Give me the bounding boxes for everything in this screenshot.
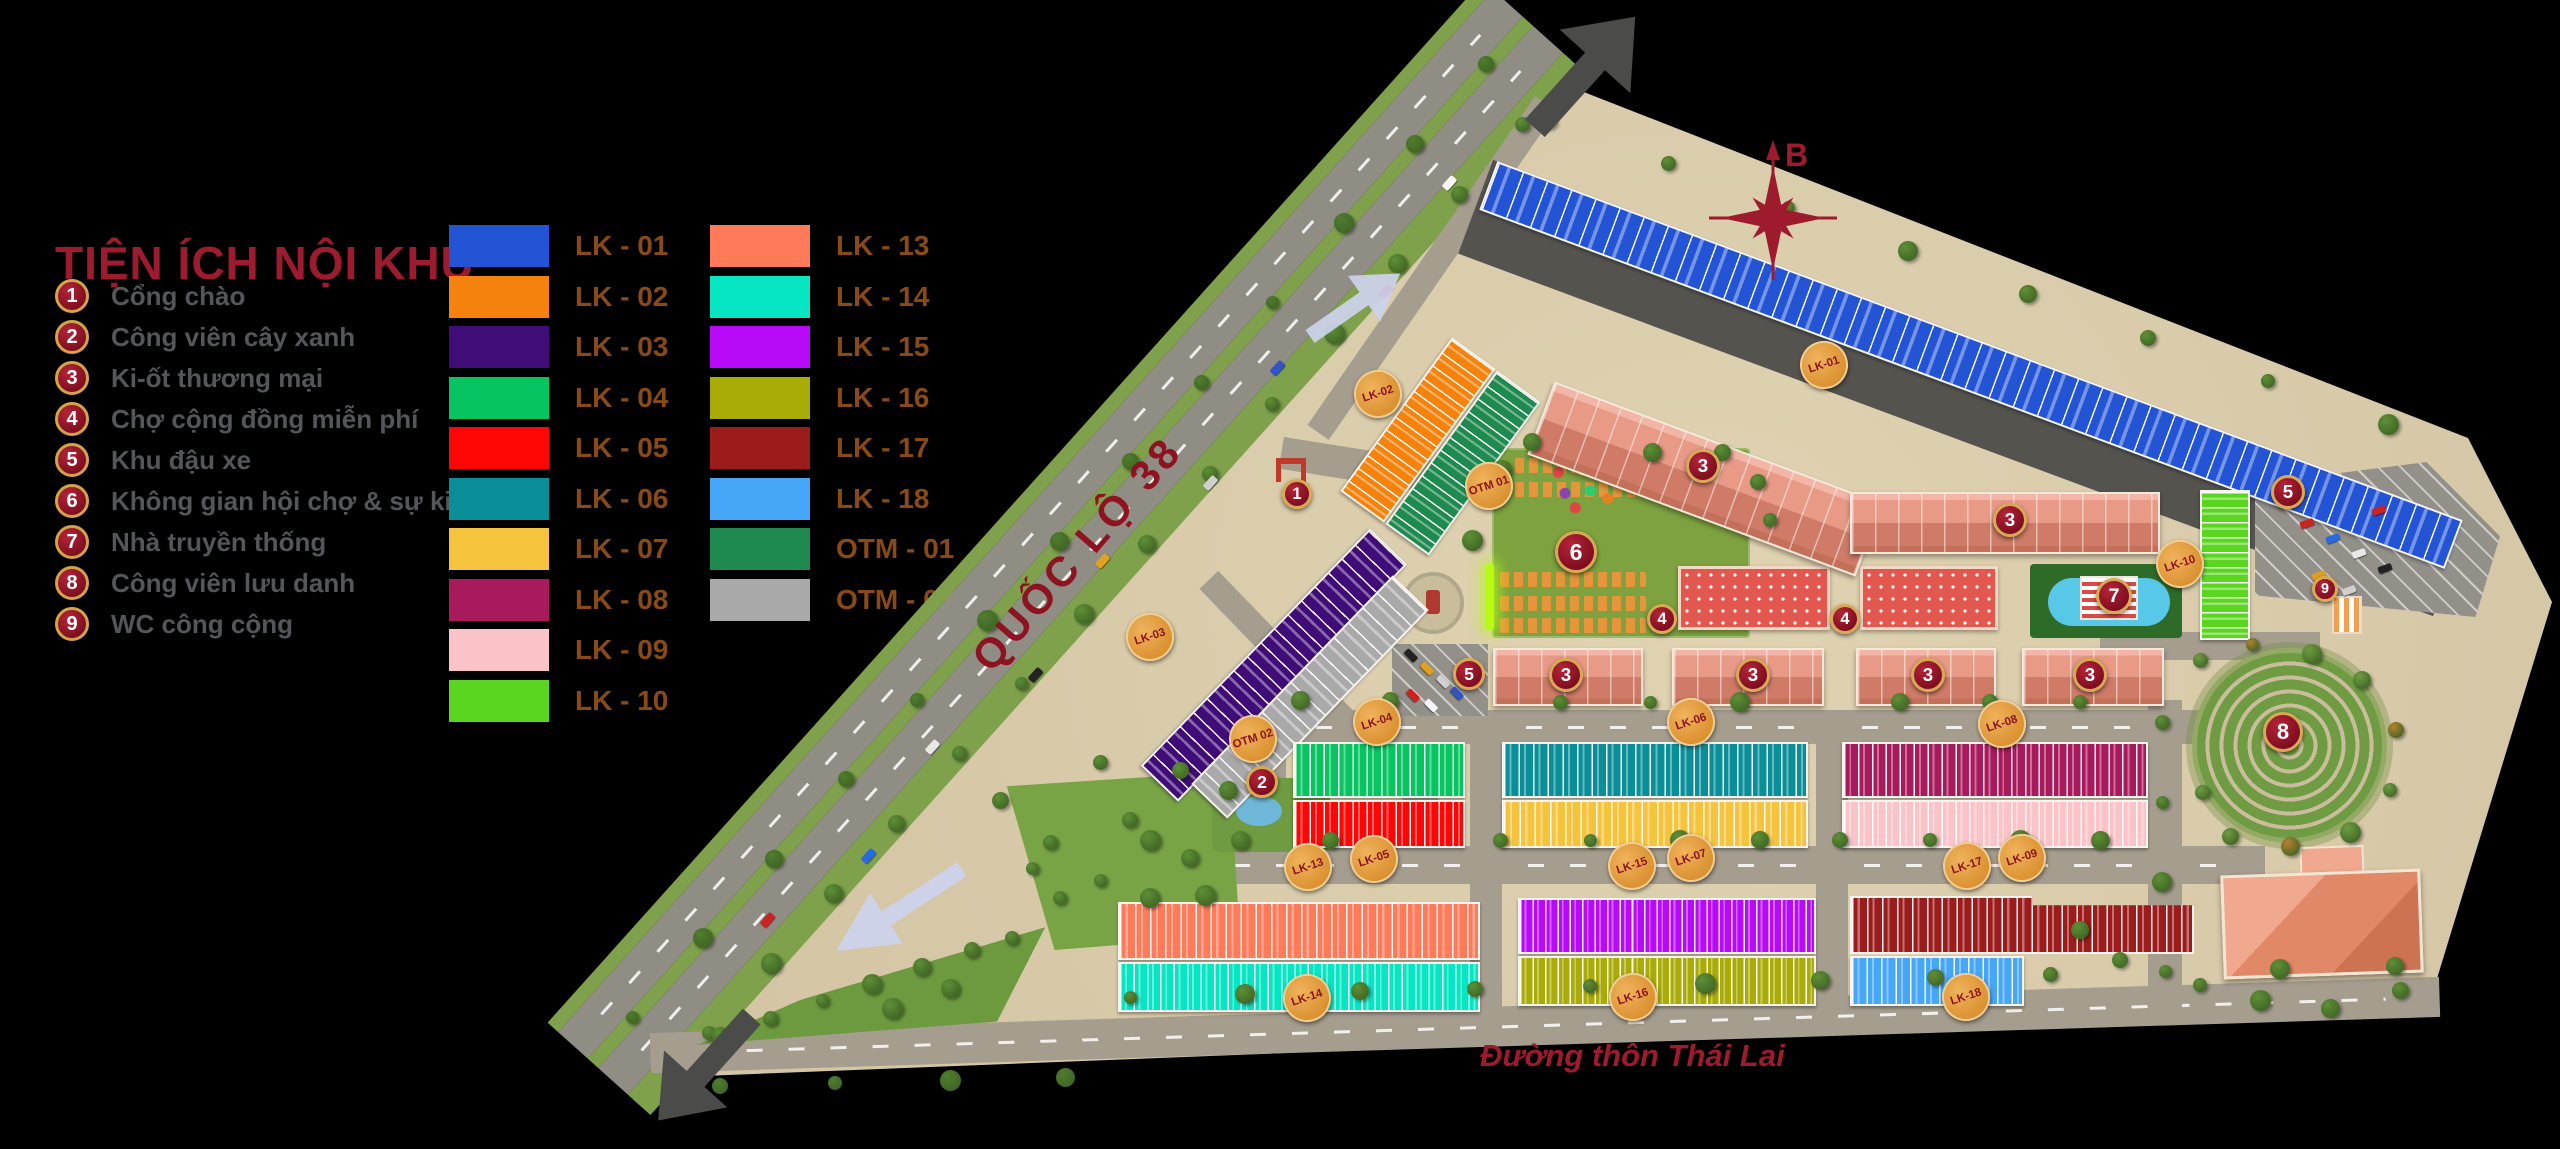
site-map: 1233333344556789LK-01LK-02LK-03LK-04LK-0… [0, 0, 2560, 1136]
south-road-label: Đường thôn Thái Lai [1480, 1038, 1785, 1074]
amenity-badge-3: 3 [1736, 658, 1770, 692]
car-icon [1027, 666, 1043, 683]
amenity-badge-4: 4 [1647, 604, 1677, 634]
car-icon [860, 847, 876, 864]
car-icon [1436, 674, 1451, 689]
amenity-badge-3: 3 [1911, 658, 1945, 692]
amenity-badge-9: 9 [2312, 576, 2338, 602]
compass-north-label: B [1785, 137, 1808, 173]
amenity-badge-1: 1 [1282, 479, 1312, 509]
car-icon [1404, 648, 1419, 663]
car-icon [2371, 505, 2387, 516]
amenity-badge-4: 4 [1830, 604, 1860, 634]
car-icon [1202, 474, 1218, 491]
car-icon [1424, 698, 1439, 713]
car-icon [2325, 533, 2341, 544]
masterplan-canvas: TIỆN ÍCH NỘI KHU 1Cổng chào2Công viên câ… [0, 0, 2560, 1136]
car-icon [925, 739, 941, 756]
amenity-badge-3: 3 [1549, 658, 1583, 692]
car-icon [2377, 563, 2393, 574]
car-icon [1420, 661, 1435, 676]
amenity-badge-5: 5 [1453, 658, 1485, 690]
car-icon [1270, 360, 1286, 377]
amenity-badge-3: 3 [1686, 449, 1720, 483]
car-icon [2351, 548, 2367, 559]
amenity-badge-2: 2 [1246, 766, 1278, 798]
amenity-badge-7: 7 [2096, 578, 2132, 614]
amenity-badge-3: 3 [2073, 658, 2107, 692]
car-icon [2299, 518, 2315, 529]
amenity-badge-3: 3 [1993, 503, 2027, 537]
amenity-badge-6: 6 [1555, 531, 1597, 573]
amenity-badge-5: 5 [2271, 475, 2305, 509]
car-icon [2341, 585, 2357, 596]
car-icon [1442, 175, 1458, 192]
car-icon [1406, 688, 1421, 703]
car-icon [760, 912, 776, 929]
compass-rose-icon: B [1688, 128, 1858, 308]
amenity-badge-8: 8 [2263, 712, 2303, 752]
